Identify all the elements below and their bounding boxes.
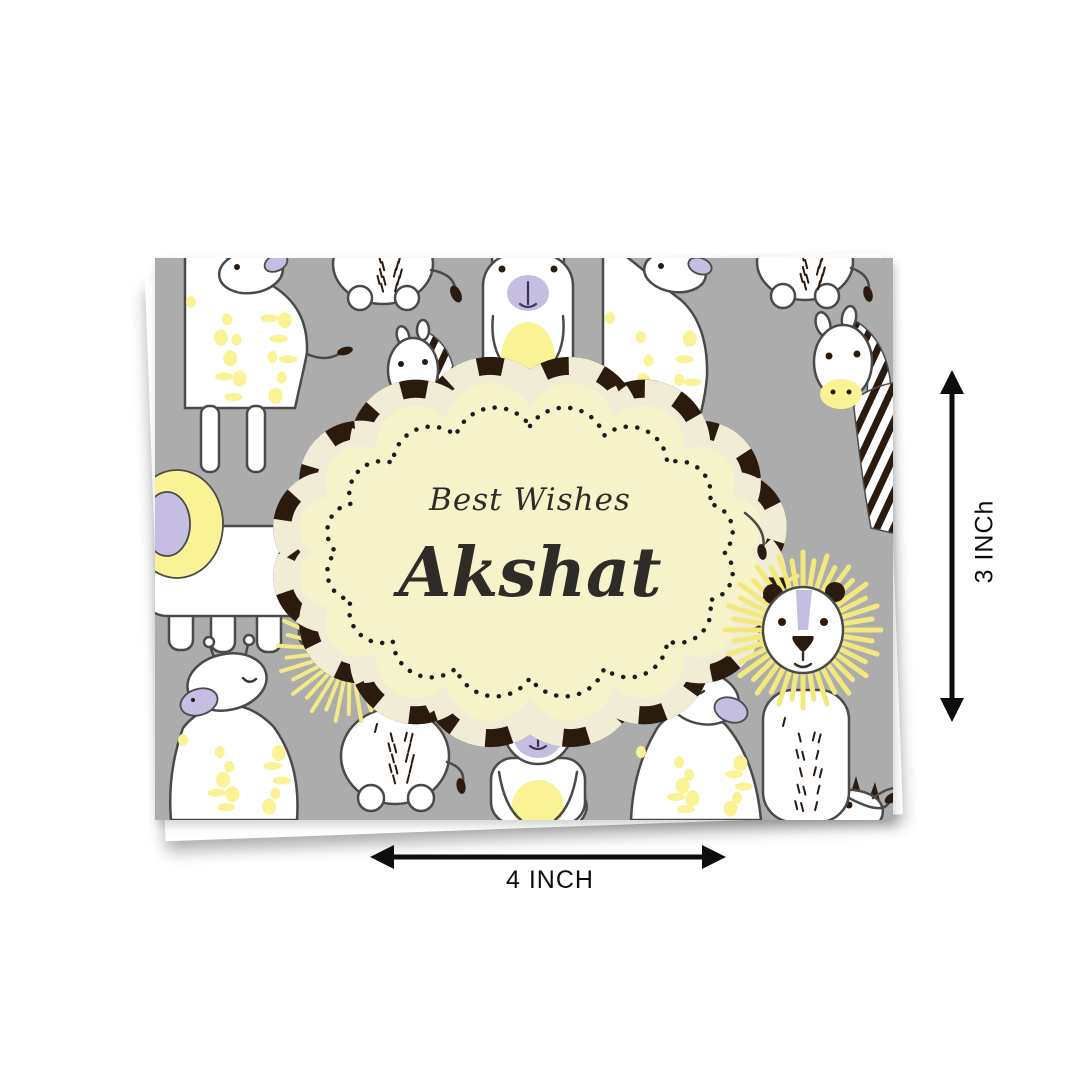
greeting-line: Best Wishes: [428, 482, 631, 518]
card-text: Best Wishes Akshat: [392, 482, 661, 613]
arrow-right-head: [702, 845, 726, 869]
bear-eye: [499, 266, 506, 273]
product-mockup: Best Wishes Akshat 4 INCH 3 INCh: [0, 0, 1080, 1080]
lion-eye: [778, 618, 786, 626]
giraffe-eye: [234, 264, 240, 270]
giraffe-ossicone: [244, 635, 254, 645]
arrow-up-head: [940, 370, 964, 394]
recipient-name: Akshat: [392, 533, 661, 613]
zebra-eye: [826, 353, 833, 360]
zebra-eye: [854, 351, 861, 358]
lion-eye: [820, 618, 828, 626]
giraffe-eye: [658, 263, 664, 269]
height-label: 3 INCh: [971, 432, 1000, 652]
zebra-muzzle: [820, 379, 862, 409]
giraffe-ossicone: [204, 637, 214, 647]
bear-eye: [551, 266, 558, 273]
width-label: 4 INCH: [440, 866, 660, 895]
greeting-card: Best Wishes Akshat: [155, 258, 893, 820]
arrow-left-head: [370, 845, 394, 869]
height-arrow: [935, 368, 969, 724]
lion-body: [763, 690, 849, 820]
arrow-down-head: [940, 698, 964, 722]
